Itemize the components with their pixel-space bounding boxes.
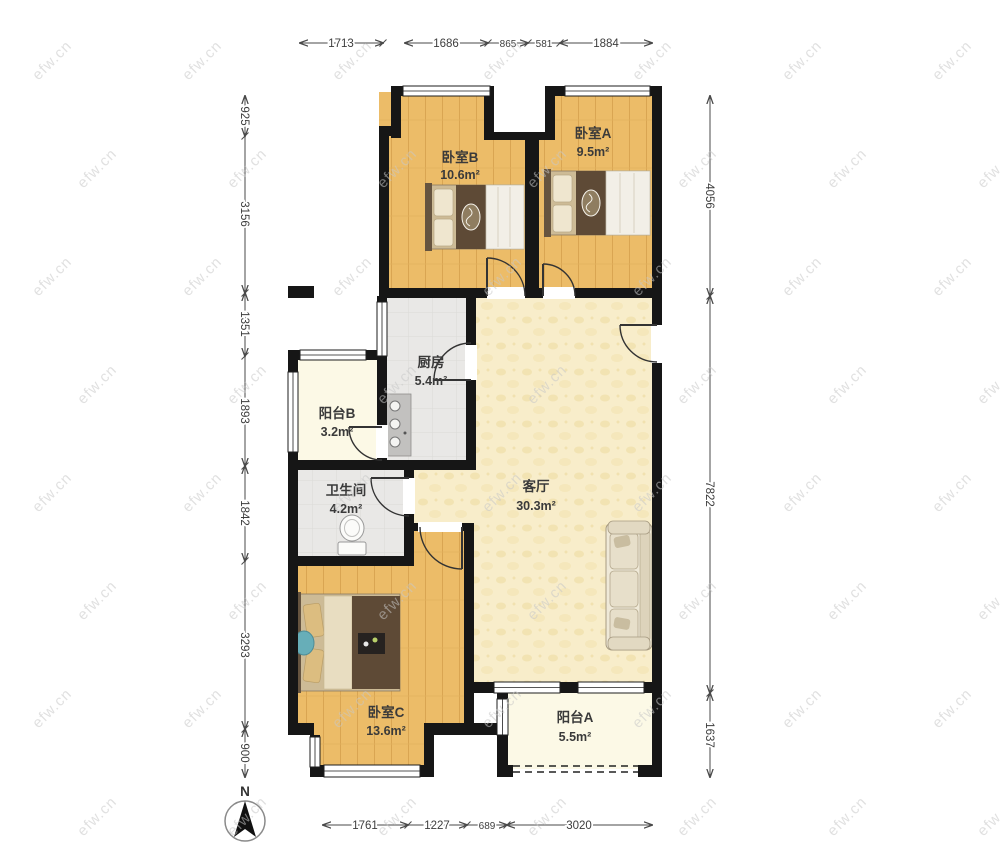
bedroom-c-area: 13.6m² — [366, 724, 406, 738]
dim-left-5: 1842 — [238, 500, 250, 526]
sofa-icon — [606, 521, 652, 650]
dim-left-1: 925 — [238, 106, 250, 125]
balcony-b-label: 阳台B — [319, 405, 356, 421]
window-living-balcony-2 — [578, 682, 644, 693]
window-balcony-a-left — [497, 699, 508, 735]
dim-bottom-4: 3020 — [566, 820, 592, 832]
window-bedroom-a-top — [565, 86, 650, 96]
dim-top-1: 1713 — [328, 38, 354, 50]
window-kitchen-left — [377, 302, 387, 356]
bathroom-area: 4.2m² — [330, 502, 363, 516]
window-balcony-b-left — [288, 372, 298, 452]
bedroom-b-label: 卧室B — [442, 149, 479, 165]
dim-left-3: 1351 — [238, 311, 250, 337]
hallway-floor — [408, 466, 470, 526]
window-bay-bottom — [324, 765, 420, 777]
living-room-label: 客厅 — [522, 478, 551, 494]
dim-left-7: 900 — [238, 743, 250, 762]
bed-icon-bedroom-c — [294, 592, 400, 693]
dimension-chain-bottom: 1761 1227 689 3020 — [323, 820, 652, 832]
exterior-notch — [484, 84, 555, 140]
bedroom-a-area: 9.5m² — [577, 145, 610, 159]
dim-left-6: 3293 — [238, 632, 250, 658]
window-bay-left — [310, 737, 320, 767]
bed-icon-bedroom-b — [425, 183, 524, 251]
balcony-b-area: 3.2m² — [321, 425, 354, 439]
dim-bottom-2: 1227 — [424, 820, 450, 832]
dim-left-4: 1893 — [238, 398, 250, 424]
dim-right-3: 1637 — [703, 722, 715, 748]
north-label: N — [240, 784, 250, 799]
dimension-chain-left: 925 3156 1351 1893 1842 3293 900 — [238, 96, 250, 777]
dim-right-1: 4056 — [703, 183, 715, 209]
dim-bottom-1: 1761 — [352, 820, 378, 832]
window-bedroom-b-top — [403, 86, 490, 96]
dim-right-2: 7822 — [703, 481, 715, 507]
north-compass: N — [225, 784, 265, 841]
dim-top-3: 865 — [500, 39, 517, 50]
window-living-balcony-1 — [494, 682, 560, 693]
dimension-chain-right: 4056 7822 1637 — [703, 96, 715, 777]
balcony-a-area: 5.5m² — [559, 730, 592, 744]
dim-bottom-3: 689 — [479, 821, 496, 832]
dim-top-4: 581 — [536, 39, 553, 50]
balcony-a-label: 阳台A — [557, 709, 594, 725]
bedroom-b-area: 10.6m² — [440, 168, 480, 182]
dim-top-5: 1884 — [593, 38, 619, 50]
kitchen-area: 5.4m² — [415, 374, 448, 388]
floorplan-drawing: 卧室B 10.6m² 卧室A 9.5m² 厨房 5.4m² 阳台B 3.2m² … — [0, 0, 1000, 863]
toilet-icon — [338, 515, 366, 555]
window-balcony-b-top — [300, 350, 366, 360]
bathroom-label: 卫生间 — [326, 482, 367, 498]
balcony-a-floor — [503, 689, 654, 769]
living-room-area: 30.3m² — [516, 499, 556, 513]
bedroom-a-label: 卧室A — [575, 125, 612, 141]
floorplan-canvas: 卧室B 10.6m² 卧室A 9.5m² 厨房 5.4m² 阳台B 3.2m² … — [0, 0, 1000, 863]
bed-icon-bedroom-a — [544, 169, 650, 237]
dim-left-2: 3156 — [238, 201, 250, 227]
dimension-chain-top: 1713 1686 865 581 1884 — [300, 38, 652, 50]
kitchen-label: 厨房 — [418, 354, 445, 370]
bedroom-c-label: 卧室C — [368, 704, 405, 720]
dim-top-2: 1686 — [433, 38, 459, 50]
